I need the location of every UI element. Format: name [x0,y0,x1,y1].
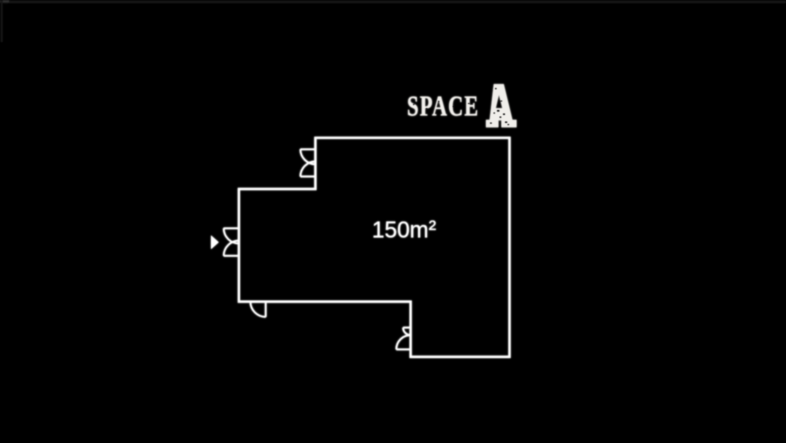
svg-text:SPACE: SPACE [407,91,479,122]
svg-text:150m²: 150m² [372,215,437,243]
